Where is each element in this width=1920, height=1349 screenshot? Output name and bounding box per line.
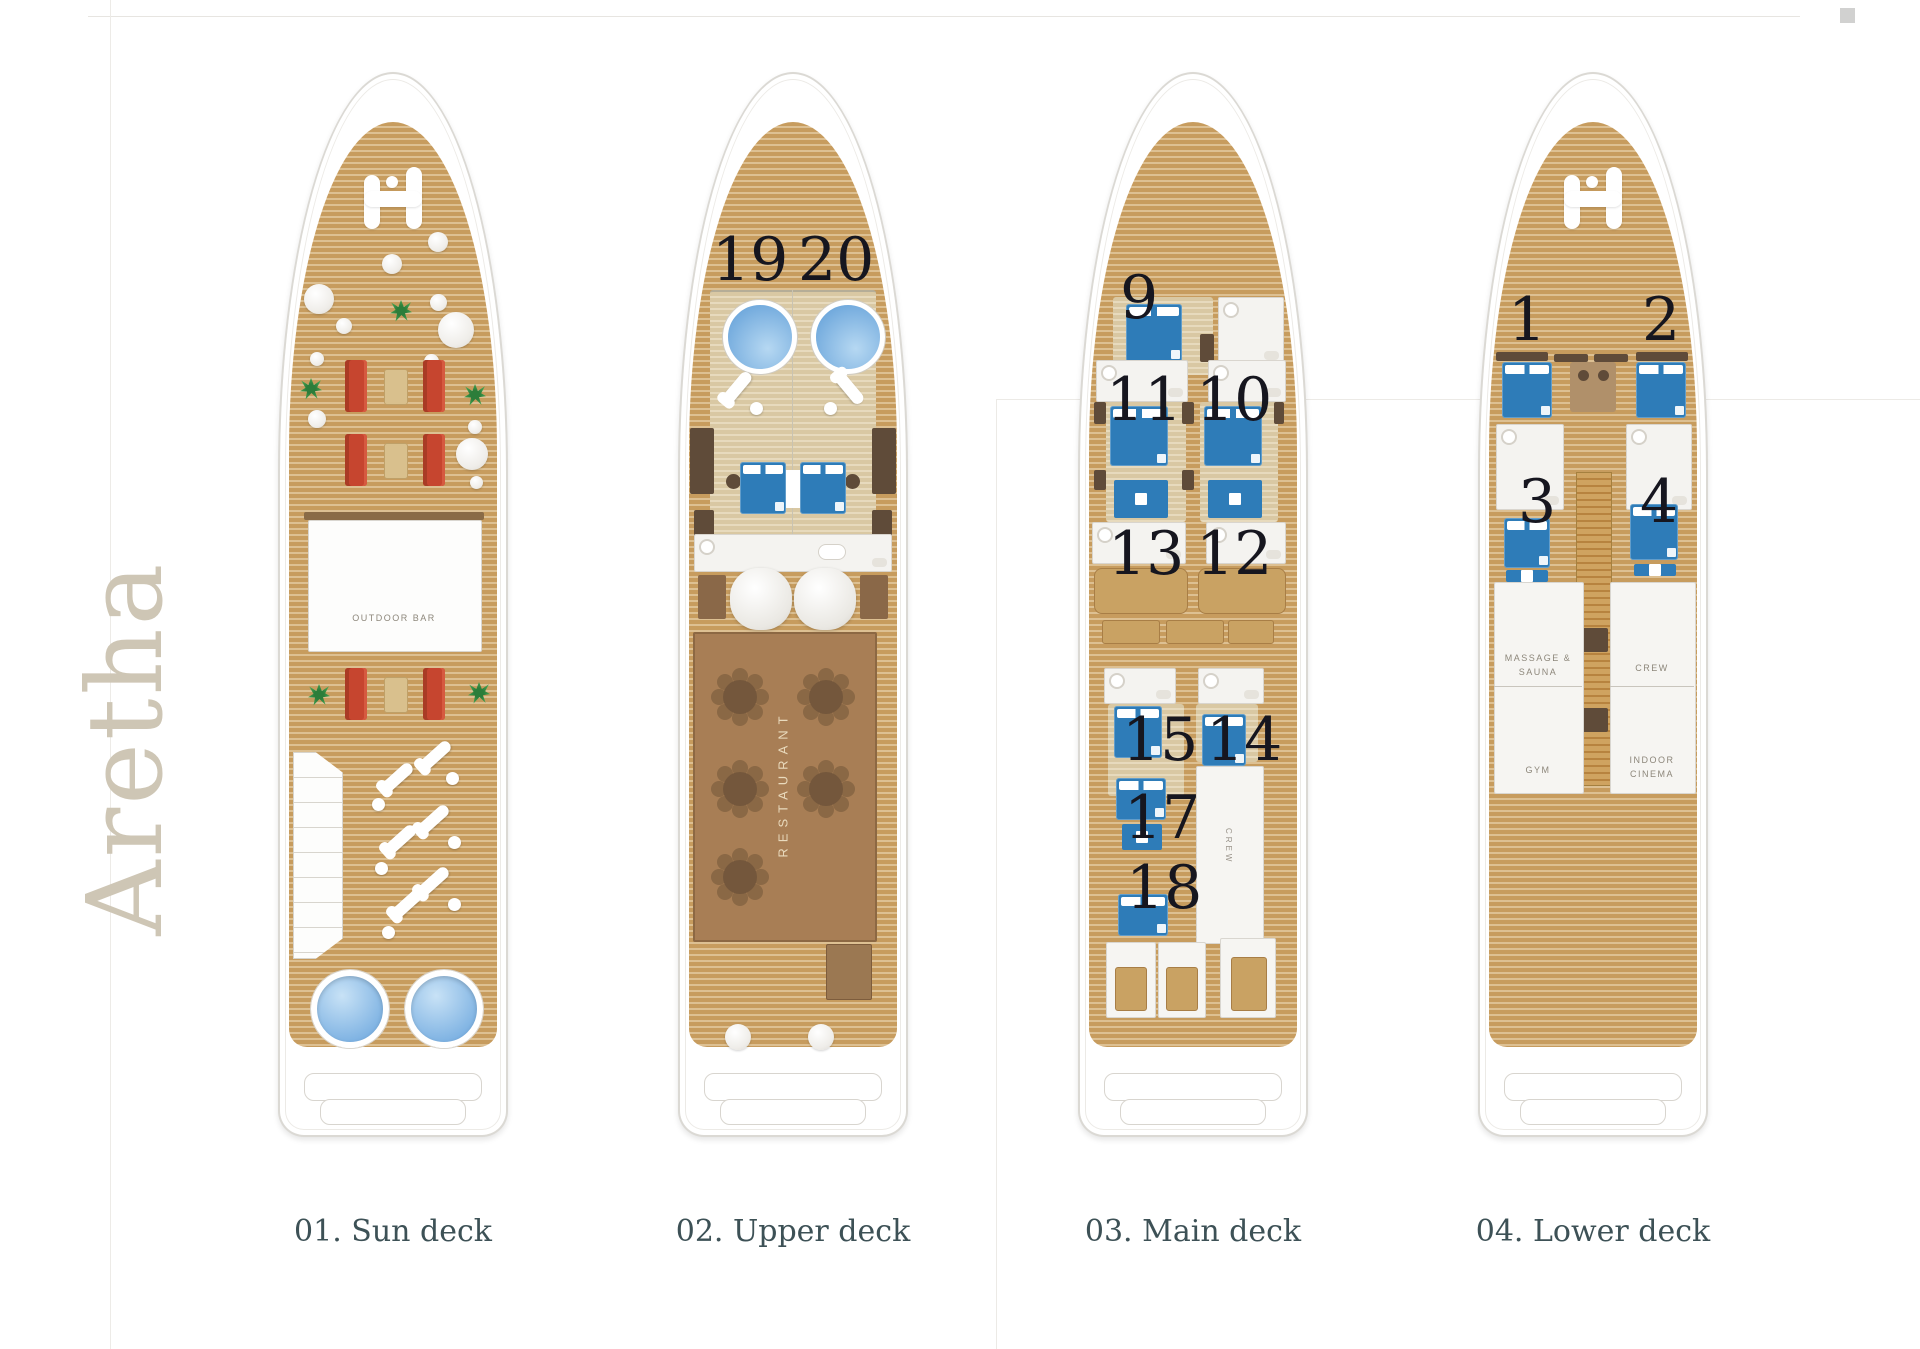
cabin-number-14: 14 bbox=[1206, 710, 1282, 770]
room-divider bbox=[1494, 686, 1582, 687]
restaurant-table bbox=[809, 772, 843, 806]
cabinet bbox=[1274, 402, 1284, 424]
swim-platform bbox=[320, 1099, 466, 1125]
swim-platform bbox=[720, 1099, 866, 1125]
sofa-group bbox=[345, 360, 445, 412]
room-divider bbox=[1610, 686, 1694, 687]
funnel bbox=[794, 568, 856, 630]
hot-tub bbox=[405, 970, 483, 1048]
spa-pool bbox=[723, 300, 797, 374]
cabin-number-20: 20 bbox=[798, 230, 874, 290]
hatch bbox=[1115, 967, 1147, 1011]
crew-label: CREW bbox=[1610, 662, 1694, 676]
spa-pool bbox=[811, 300, 885, 374]
cabin-lobby bbox=[1570, 362, 1616, 412]
cabin-number-9: 9 bbox=[1120, 268, 1158, 328]
side-cabinet bbox=[860, 575, 888, 619]
coffee-table bbox=[384, 369, 408, 405]
boat-upper-deck: 19 20 RESTAURANT bbox=[678, 72, 908, 1137]
restaurant-table bbox=[723, 680, 757, 714]
cabinet bbox=[1094, 402, 1106, 424]
round-table bbox=[725, 1024, 751, 1050]
aft-locker bbox=[1220, 938, 1276, 1018]
cabin-number-2: 2 bbox=[1642, 290, 1680, 350]
swim-platform bbox=[1120, 1099, 1266, 1125]
sun-pad bbox=[1166, 620, 1224, 644]
seating-unit bbox=[1114, 480, 1168, 518]
round-table bbox=[310, 352, 324, 366]
side-table bbox=[382, 926, 395, 939]
deck-label-main: 03. Main deck bbox=[1043, 1214, 1343, 1249]
round-table bbox=[808, 1024, 834, 1050]
boat-sun-deck: OUTDOOR BAR bbox=[278, 72, 508, 1137]
hot-tub bbox=[311, 970, 389, 1048]
cabin-number-12: 12 bbox=[1196, 524, 1272, 584]
funnel bbox=[730, 568, 792, 630]
crew-label: CREW bbox=[1224, 828, 1233, 864]
boat-main-deck: 9 11 10 13 12 15 14 bbox=[1078, 72, 1308, 1137]
cabinet bbox=[1182, 470, 1194, 490]
bathroom bbox=[1104, 668, 1176, 704]
page-corner-mark bbox=[1840, 8, 1855, 23]
bed bbox=[1502, 362, 1552, 418]
bathroom bbox=[1218, 297, 1284, 365]
round-table bbox=[456, 438, 488, 470]
massage-sauna-label: MASSAGE & SAUNA bbox=[1494, 652, 1582, 679]
coffee-table bbox=[384, 443, 408, 479]
outdoor-bar-label: OUTDOOR BAR bbox=[308, 612, 480, 626]
cabin-number-3: 3 bbox=[1518, 472, 1556, 532]
round-table bbox=[428, 232, 448, 252]
cabinet bbox=[690, 428, 714, 494]
coffee-table bbox=[384, 677, 408, 713]
deck-label-upper: 02. Upper deck bbox=[643, 1214, 943, 1249]
bath-fixture bbox=[818, 544, 846, 560]
side-table bbox=[750, 402, 763, 415]
cabinet bbox=[1200, 334, 1214, 362]
restaurant-table bbox=[723, 772, 757, 806]
brand-name: Aretha bbox=[64, 560, 186, 935]
gym-label: GYM bbox=[1494, 764, 1582, 778]
aft-locker bbox=[1106, 942, 1156, 1018]
restaurant-table bbox=[723, 860, 757, 894]
bow-bollard-icon bbox=[364, 167, 422, 229]
headboard bbox=[1554, 354, 1588, 362]
deck-plan-page: Aretha bbox=[0, 0, 1920, 1349]
swim-platform bbox=[304, 1073, 482, 1101]
bow-bollard-icon bbox=[1564, 167, 1622, 229]
sofa bbox=[423, 360, 445, 412]
round-table bbox=[336, 318, 352, 334]
side-table bbox=[446, 772, 459, 785]
sofa-group bbox=[345, 668, 445, 720]
swim-platform bbox=[1520, 1099, 1666, 1125]
side-table bbox=[448, 836, 461, 849]
swim-platform bbox=[1504, 1073, 1682, 1101]
hatch bbox=[1166, 967, 1198, 1011]
bar-wall bbox=[304, 512, 484, 520]
restaurant-table bbox=[809, 680, 843, 714]
stairs-structure bbox=[293, 752, 343, 959]
side-cabinet bbox=[698, 575, 726, 619]
aft-locker bbox=[1158, 942, 1206, 1018]
cabin-number-19: 19 bbox=[712, 230, 788, 290]
seating-unit bbox=[1506, 570, 1548, 582]
cabin-number-1: 1 bbox=[1508, 290, 1546, 350]
sofa bbox=[345, 360, 367, 412]
outdoor-bar-area bbox=[308, 520, 482, 652]
aft-cabinet bbox=[826, 944, 872, 1000]
round-table bbox=[382, 254, 402, 274]
side-table bbox=[824, 402, 837, 415]
sofa bbox=[423, 434, 445, 486]
wellness-rooms bbox=[1494, 582, 1584, 794]
stool bbox=[726, 474, 741, 489]
round-table bbox=[470, 476, 483, 489]
stool bbox=[845, 474, 860, 489]
bed bbox=[1636, 362, 1686, 418]
round-table bbox=[430, 294, 447, 311]
stool bbox=[1598, 370, 1609, 381]
cabinet bbox=[1094, 470, 1106, 490]
side-table bbox=[372, 798, 385, 811]
seating-unit bbox=[1634, 564, 1676, 576]
sofa bbox=[345, 668, 367, 720]
cabin-number-18: 18 bbox=[1126, 858, 1202, 918]
stool bbox=[1578, 370, 1589, 381]
cabin-number-17: 17 bbox=[1124, 788, 1200, 848]
cabin-number-13: 13 bbox=[1108, 524, 1184, 584]
sofa bbox=[423, 668, 445, 720]
sun-pad bbox=[1228, 620, 1274, 644]
side-table bbox=[375, 862, 388, 875]
sofa-group bbox=[345, 434, 445, 486]
boat-lower-deck: 1 2 3 4 MASSAGE & SAUNA GYM CREW INDOOR … bbox=[1478, 72, 1708, 1137]
page-edge-line-top bbox=[88, 16, 1800, 17]
round-table bbox=[438, 312, 474, 348]
sofa bbox=[345, 434, 367, 486]
cabin-number-15: 15 bbox=[1122, 710, 1198, 770]
round-table bbox=[468, 420, 482, 434]
swim-platform bbox=[1104, 1073, 1282, 1101]
round-table bbox=[304, 284, 334, 314]
cabinet bbox=[872, 428, 896, 494]
deck-label-lower: 04. Lower deck bbox=[1443, 1214, 1743, 1249]
swim-platform bbox=[704, 1073, 882, 1101]
hatch bbox=[1231, 957, 1267, 1011]
bed bbox=[800, 462, 846, 514]
cabin-number-11: 11 bbox=[1106, 370, 1182, 430]
sun-pad bbox=[1102, 620, 1160, 644]
side-table bbox=[448, 898, 461, 911]
cabin-number-10: 10 bbox=[1196, 370, 1272, 430]
bathroom bbox=[694, 534, 892, 572]
bed bbox=[740, 462, 786, 514]
round-table bbox=[308, 410, 326, 428]
seating-unit bbox=[1208, 480, 1262, 518]
indoor-cinema-label: INDOOR CINEMA bbox=[1610, 754, 1694, 781]
cabin-number-4: 4 bbox=[1640, 472, 1678, 532]
cabinet bbox=[1182, 402, 1194, 424]
bathroom bbox=[1198, 668, 1264, 704]
headboard bbox=[1594, 354, 1628, 362]
deck-label-sun: 01. Sun deck bbox=[243, 1214, 543, 1249]
restaurant-label: RESTAURANT bbox=[776, 710, 791, 857]
